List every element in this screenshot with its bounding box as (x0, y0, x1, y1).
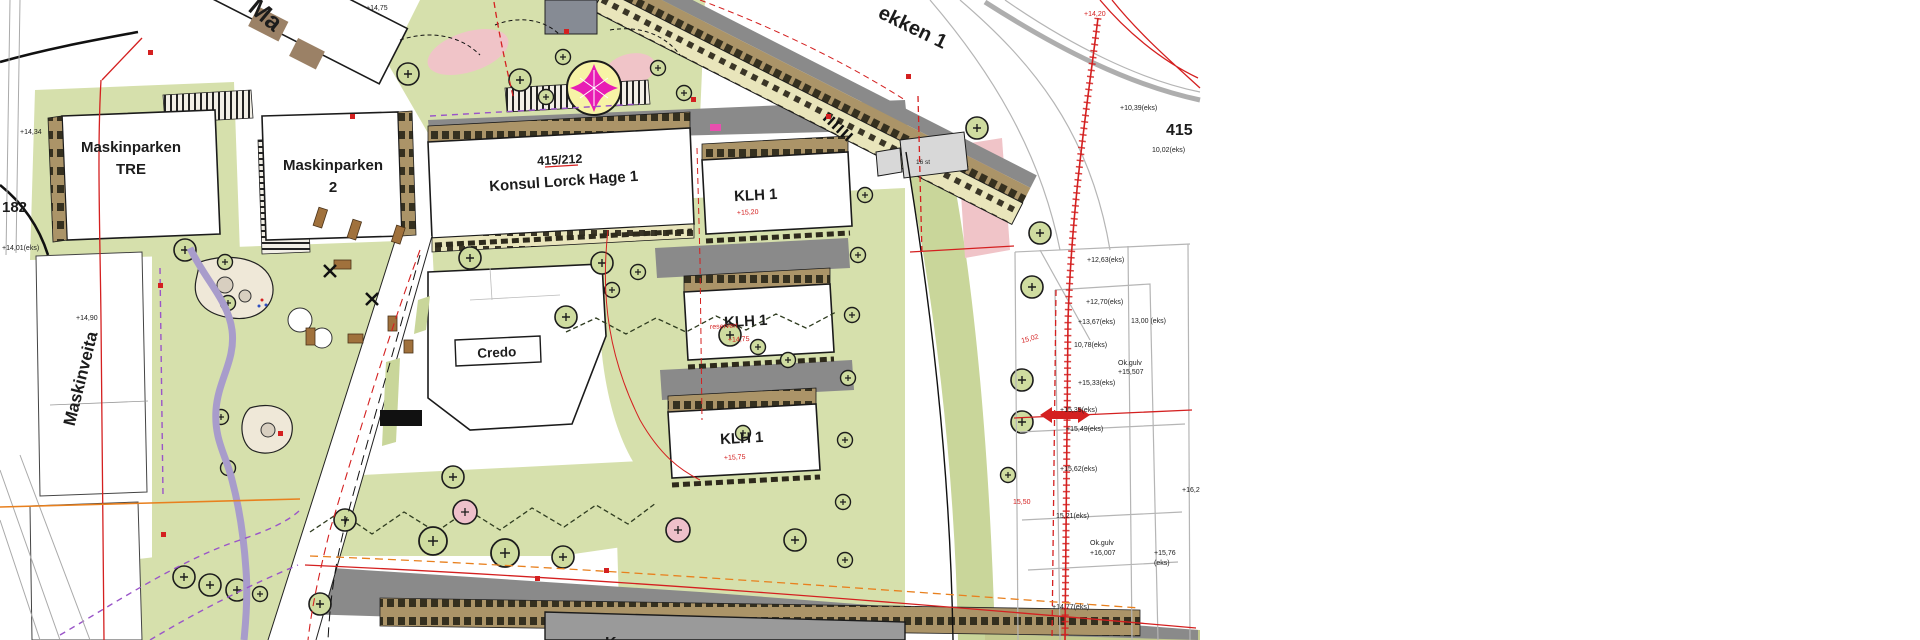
red-marker (564, 29, 569, 34)
site-plan-map: Maskinparken TRE Maskinparken 2 415/212 … (0, 0, 1920, 640)
tree-symbol (491, 539, 519, 567)
elev-label: 10,78(eks) (1074, 342, 1107, 349)
tree-symbol (419, 527, 447, 555)
label-parcel-182: 182 (2, 199, 27, 216)
label-building-partial-bottom: K (605, 635, 617, 640)
tree-symbol (677, 86, 692, 101)
tree-symbol (334, 509, 356, 531)
red-marker (158, 283, 163, 288)
red-marker (826, 114, 831, 119)
elev-label: Ok.gulv (1090, 540, 1114, 547)
elev-label: +15,76 (1154, 550, 1176, 557)
red-marker (535, 576, 540, 581)
elev-label: +12,70(eks) (1086, 299, 1123, 306)
label-maskinparken-tre-line1: Maskinparken (81, 139, 181, 156)
elev-label: +14,90 (76, 315, 98, 322)
pink-tree-symbol (453, 500, 477, 524)
elev-label: (eks) (1154, 560, 1170, 567)
playground-feature (567, 61, 621, 115)
building-16st (900, 132, 968, 178)
tree-symbol (591, 252, 613, 274)
label-parcel-415-212: 415/212 (537, 152, 583, 168)
tree-symbol (838, 553, 853, 568)
tree-symbol (1011, 369, 1033, 391)
play-dot (265, 304, 268, 307)
tree-symbol (253, 587, 268, 602)
play-dot (258, 305, 261, 308)
tree-symbol (1011, 411, 1033, 433)
tree-symbol (858, 188, 873, 203)
tree-symbol (555, 306, 577, 328)
elev-label: Ok.gulv (1118, 360, 1142, 367)
sand-area-1 (195, 257, 273, 318)
elev-label: +14,34 (20, 129, 42, 136)
label-parking-count: 16 st (916, 159, 930, 166)
elev-label: +15,33(eks) (1078, 380, 1115, 387)
tree-symbol (173, 566, 195, 588)
elev-label: 15,21(eks) (1056, 513, 1089, 520)
pink-tree-symbol (666, 518, 690, 542)
elev-label: +16,2 (1182, 487, 1200, 494)
label-parcel-415: 415 (1166, 122, 1193, 139)
tree-symbol (556, 50, 571, 65)
elev-label: +14,01(eks) (2, 245, 39, 252)
tree-symbol (651, 61, 666, 76)
play-dot (261, 299, 264, 302)
elev-label: +14,75 (366, 5, 388, 12)
tree-symbol (838, 433, 853, 448)
elev-label: +15,49(eks) (1066, 426, 1103, 433)
elev-label: +15,39(eks) (1060, 407, 1097, 414)
red-marker (350, 114, 355, 119)
tree-symbol (841, 371, 856, 386)
tree-symbol (552, 546, 574, 568)
tree-symbol (781, 353, 796, 368)
red-marker (161, 532, 166, 537)
elev-label: +14,77(eks) (1052, 604, 1089, 611)
label-klh-top: KLH 1 (734, 186, 778, 205)
bench (348, 334, 363, 343)
building-maskinparken-2 (262, 112, 402, 240)
elev-label-red: +14,75 (728, 336, 750, 344)
elev-label-red: +15,20 (737, 209, 759, 217)
grey-roof-building (545, 0, 597, 34)
tree-symbol (218, 255, 233, 270)
bench (334, 260, 351, 269)
tree-symbol (459, 247, 481, 269)
building-16st-annex (876, 148, 902, 176)
elev-label: +10,39(eks) (1120, 105, 1157, 112)
parcel-maskinveita-lower (30, 502, 142, 640)
dark-structure (380, 410, 422, 426)
magenta-marker (710, 124, 721, 131)
elev-label-red: +14,20 (1084, 11, 1106, 18)
elev-label: +13,67(eks) (1078, 319, 1115, 326)
bench (404, 340, 413, 353)
site-plan-screenshot: Maskinparken TRE Maskinparken 2 415/212 … (0, 0, 1920, 640)
maskinveita-parcels (30, 252, 147, 640)
elev-label-red: 15,50 (1013, 499, 1031, 506)
tree-symbol (836, 495, 851, 510)
elev-label: +12,63(eks) (1087, 257, 1124, 264)
play-circle-2 (239, 290, 251, 302)
tree-symbol (1001, 468, 1016, 483)
play-circle-3 (261, 423, 275, 437)
tree-symbol (199, 574, 221, 596)
elev-label: +15,62(eks) (1060, 466, 1097, 473)
elev-label: 10,02(eks) (1152, 147, 1185, 154)
tree-symbol (784, 529, 806, 551)
tree-symbol (851, 248, 866, 263)
tree-symbol (751, 340, 766, 355)
elev-label-red: +15,75 (724, 454, 746, 462)
label-credo: Credo (477, 344, 517, 361)
elev-label-red: reservert (710, 323, 738, 331)
tree-symbol (631, 265, 646, 280)
tree-symbol (845, 308, 860, 323)
label-klh-bottom: KLH 1 (720, 429, 764, 448)
red-marker (906, 74, 911, 79)
red-marker (604, 568, 609, 573)
label-maskinparken-2-line1: Maskinparken (283, 157, 383, 174)
red-marker (691, 97, 696, 102)
label-maskinparken-tre-line2: TRE (116, 161, 146, 178)
tree-symbol (1029, 222, 1051, 244)
tree-symbol (966, 117, 988, 139)
elev-label: +15,507 (1118, 369, 1144, 376)
tree-symbol (442, 466, 464, 488)
elev-label: +16,007 (1090, 550, 1116, 557)
tree-symbol (539, 90, 554, 105)
elev-label: 13,00 (eks) (1131, 318, 1166, 325)
tree-symbol (509, 69, 531, 91)
label-maskinparken-2-line2: 2 (329, 179, 337, 196)
bench (306, 328, 315, 345)
tree-symbol (1021, 276, 1043, 298)
red-marker (278, 431, 283, 436)
red-marker (148, 50, 153, 55)
tree-symbol (397, 63, 419, 85)
tree-symbol (605, 283, 620, 298)
